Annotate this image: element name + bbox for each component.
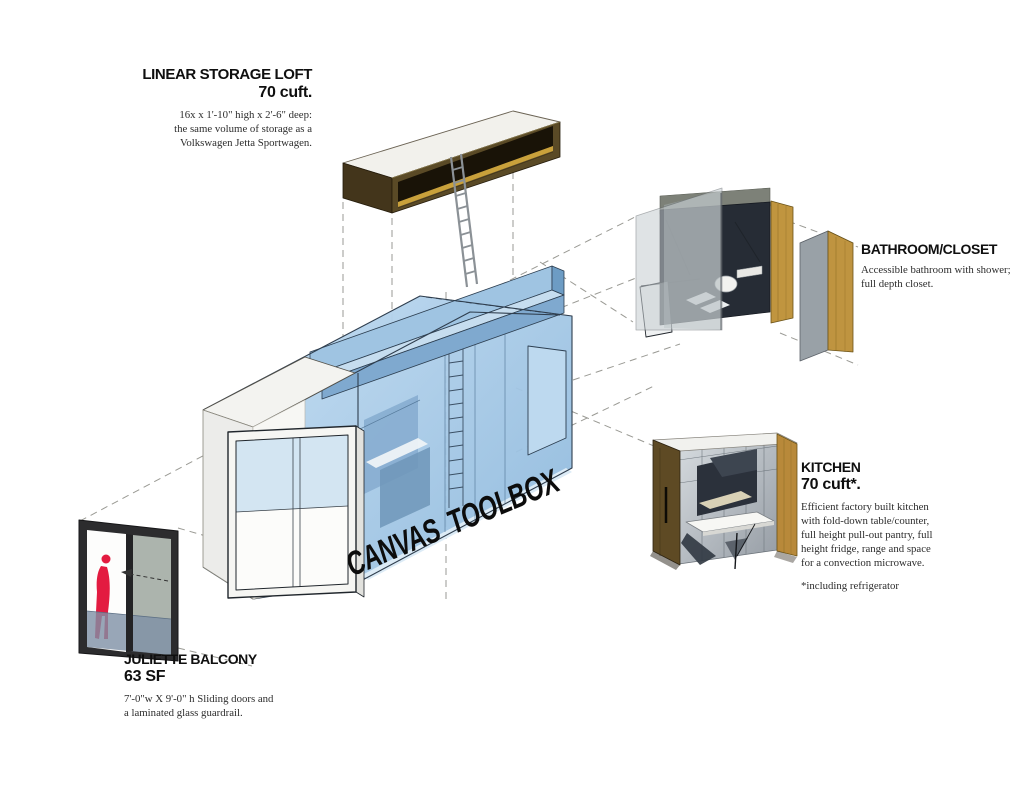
kitchen-value: 70 cuft*.	[801, 476, 935, 494]
callout-juliette-balcony: JULIETTE BALCONY 63 SF 7'-0"w X 9'-0" h …	[124, 651, 296, 720]
unit-door-panel	[528, 346, 566, 455]
bathroom-illustration	[636, 188, 793, 337]
kitchen-heading: KITCHEN	[801, 459, 935, 475]
exploded-axonometric-diagram: CANVAS TOOLBOX LINEAR STORAGE LOFT 70 cu…	[0, 0, 1024, 804]
callout-storage-loft: LINEAR STORAGE LOFT 70 cuft. 16x x 1'-10…	[138, 66, 312, 150]
closet-illustration	[800, 231, 853, 361]
kitchen-illustration	[650, 433, 797, 570]
balcony-heading: JULIETTE BALCONY	[124, 651, 296, 667]
balcony-value: 63 SF	[124, 668, 296, 686]
callout-bathroom-closet: BATHROOM/CLOSET Accessible bathroom with…	[861, 241, 1024, 291]
balcony-illustration	[79, 520, 178, 661]
kitchen-wood-pillar-left	[653, 440, 680, 565]
kitchen-wood-pillar-right	[777, 434, 797, 556]
bathroom-wood-panel	[771, 201, 793, 323]
bathroom-description: Accessible bathroom with shower; full de…	[861, 263, 1024, 291]
kitchen-footnote: *including refrigerator	[801, 579, 935, 593]
bathroom-heading: BATHROOM/CLOSET	[861, 241, 1024, 257]
storage-loft-heading: LINEAR STORAGE LOFT	[138, 66, 312, 83]
unit-window-frame	[228, 426, 364, 598]
callout-kitchen: KITCHEN 70 cuft*. Efficient factory buil…	[801, 459, 935, 593]
storage-loft-description: 16x x 1'-10" high x 2'-6" deep: the same…	[138, 108, 312, 150]
storage-loft-illustration	[343, 111, 560, 287]
balcony-description: 7'-0"w X 9'-0" h Sliding doors and a lam…	[124, 692, 296, 720]
storage-loft-value: 70 cuft.	[138, 84, 312, 102]
kitchen-description: Efficient factory built kitchen with fol…	[801, 500, 935, 570]
